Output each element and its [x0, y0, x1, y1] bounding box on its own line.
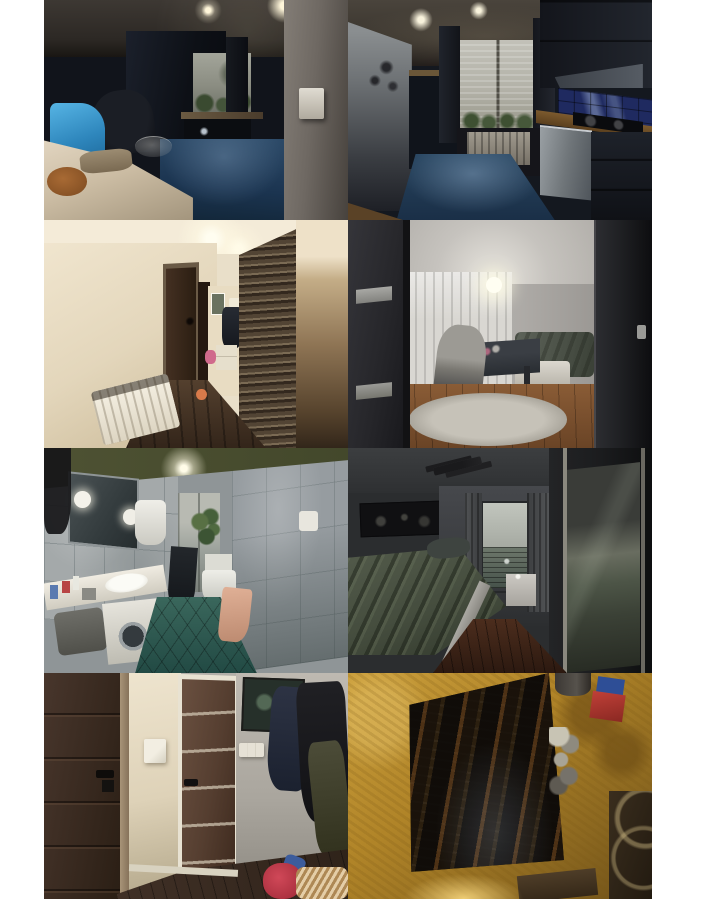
- stored-jars: [549, 727, 579, 795]
- shaggy-rug: [409, 393, 567, 445]
- red-box: [589, 691, 626, 722]
- beige-blanket: [296, 867, 348, 899]
- entry-door-lock: [102, 780, 114, 791]
- light-switch: [299, 88, 323, 119]
- gallery-photo-kitchen-galley[interactable]: [348, 0, 652, 220]
- entry-door-frame: [120, 673, 129, 899]
- dishwasher: [540, 125, 592, 201]
- shoe-cabinet: [216, 345, 237, 370]
- wardrobe-frame-strip: [563, 448, 567, 673]
- ceiling-lamp: [486, 277, 501, 293]
- kitchen2-window: [460, 40, 536, 130]
- wardrobe-mirror-reflection: [567, 462, 640, 672]
- gallery-photo-entry-hall[interactable]: [44, 673, 348, 899]
- wardrobe-frame-strip2: [641, 448, 645, 673]
- gallery-photo-bedroom-dark[interactable]: [348, 448, 652, 673]
- gallery-photo-hallway[interactable]: [44, 220, 348, 448]
- toiletry-blue: [50, 585, 58, 599]
- kitchen2-fridge: [348, 22, 412, 211]
- photo-gallery: [44, 0, 652, 899]
- door-gap-shadow: [403, 220, 411, 448]
- attic-pot: [555, 673, 591, 696]
- entry-door-handle: [96, 770, 114, 778]
- toiletry-red: [62, 581, 70, 593]
- entry-switch: [144, 739, 165, 764]
- page: [0, 0, 723, 913]
- toiletry-cup: [82, 588, 96, 600]
- stone-feature-wall: [239, 229, 297, 448]
- bread-loaf: [47, 167, 87, 196]
- entry-triple-switch: [239, 743, 265, 757]
- gallery-photo-kitchen-dining[interactable]: [44, 0, 348, 220]
- pink-toy: [205, 350, 216, 364]
- bath-corner-items: [44, 448, 71, 534]
- panorama-picture: [360, 501, 442, 537]
- bath-right-tiles: [232, 448, 348, 673]
- metal-rack: [609, 791, 652, 899]
- hall-door-dark: [166, 267, 196, 396]
- toy-on-floor: [196, 389, 207, 400]
- hall-right-column: [296, 220, 348, 448]
- storage-basket: [53, 607, 107, 656]
- toiletry-white: [73, 576, 80, 590]
- kitchen2-base-cabinets: [591, 132, 652, 220]
- nightstand: [506, 574, 536, 606]
- soap-dispenser: [299, 511, 317, 531]
- gallery-photo-bedroom-office[interactable]: [348, 220, 652, 448]
- gallery-photo-bathroom[interactable]: [44, 448, 348, 673]
- entry-center-door-handle: [184, 779, 198, 786]
- open-door-left: [348, 220, 403, 448]
- gallery-photo-attic-hatch[interactable]: [348, 673, 652, 899]
- water-heater: [135, 500, 165, 545]
- kitchen2-curtain-left: [439, 26, 460, 143]
- glass-bowl: [135, 136, 171, 157]
- warm-glow: [403, 874, 525, 899]
- door-handle-plate: [637, 325, 646, 339]
- kitchen-counter-edge: [181, 112, 263, 119]
- mirror-lamp-left: [74, 491, 91, 508]
